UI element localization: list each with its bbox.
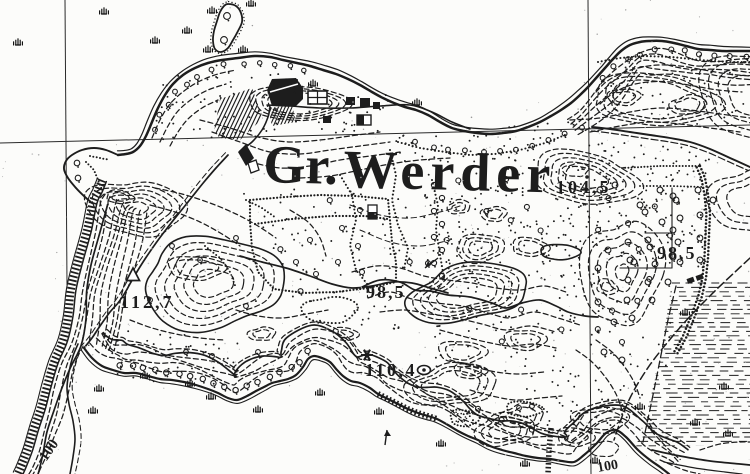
svg-text:100: 100 — [596, 458, 619, 474]
svg-text:112,7: 112,7 — [120, 292, 175, 312]
svg-text:98,5: 98,5 — [366, 282, 406, 302]
svg-text:Werder: Werder — [343, 139, 557, 205]
svg-text:Gr.: Gr. — [263, 134, 339, 196]
svg-text:104,5: 104,5 — [556, 177, 612, 197]
svg-text:98,5: 98,5 — [657, 243, 697, 263]
svg-text:110,4: 110,4 — [365, 360, 417, 380]
